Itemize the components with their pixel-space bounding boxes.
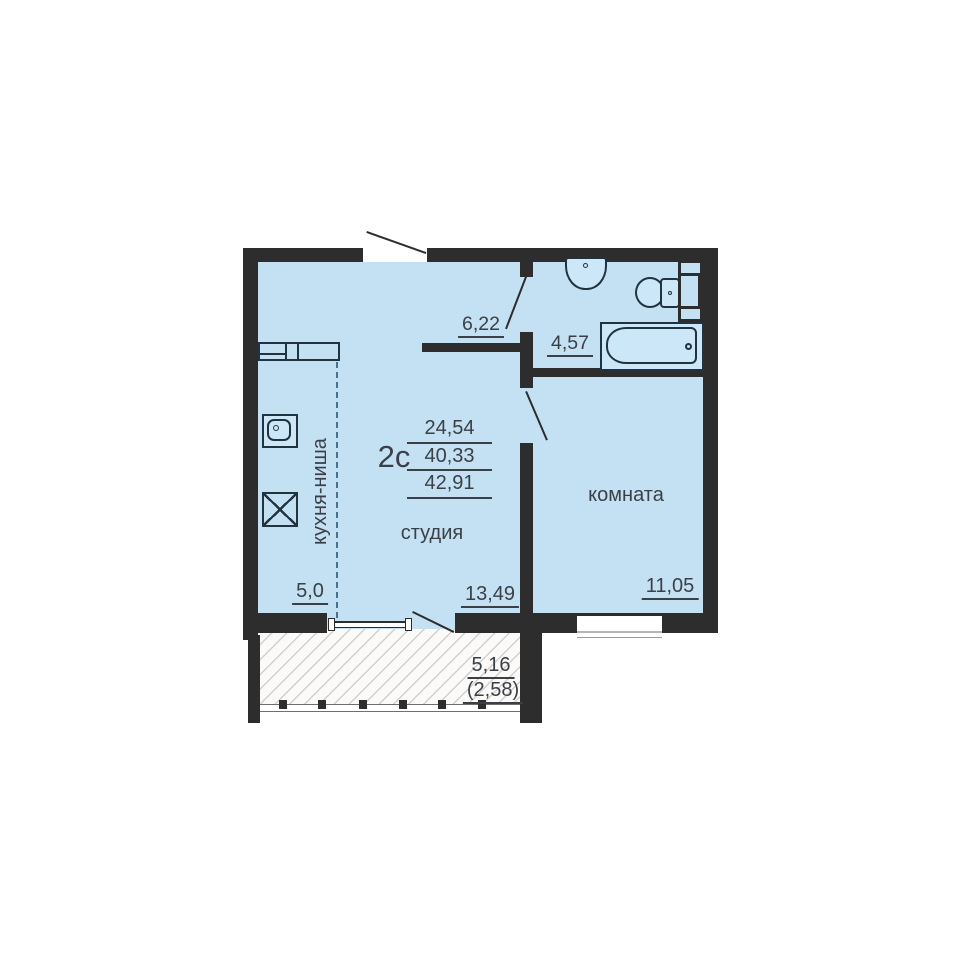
unit-area-total-living: 24,54	[407, 416, 492, 444]
railing-post	[359, 700, 367, 709]
bathroom-area-label: 4,57	[547, 333, 593, 357]
unit-area-table: 24,54 40,33 42,91	[407, 416, 492, 499]
toilet-tank-dot	[668, 291, 672, 295]
railing-post	[318, 700, 326, 709]
vent-shaft-opening	[681, 309, 700, 319]
studio-name-label: студия	[401, 522, 463, 544]
kitchen-counter-icon	[258, 342, 340, 361]
railing-post	[438, 700, 446, 709]
vent-shaft-icon	[678, 260, 703, 322]
railing-post	[399, 700, 407, 709]
washbasin-faucet-dot	[583, 263, 588, 268]
sink-basin	[267, 419, 291, 441]
wall-mid-upper	[520, 332, 533, 388]
kitchen-sink-icon	[262, 414, 298, 448]
counter-divider	[285, 344, 287, 359]
wall-mid-lower	[520, 443, 533, 613]
glazing-cap-right	[405, 618, 412, 631]
room-window	[577, 613, 662, 633]
stove-icon	[262, 492, 298, 527]
vent-shaft-opening	[681, 276, 698, 306]
hallway-area-label: 6,22	[458, 314, 504, 338]
balcony-area-label: 5,16	[468, 654, 515, 679]
wall-balcony-right	[520, 633, 542, 723]
railing-post	[279, 700, 287, 709]
counter-shelf-line	[260, 353, 285, 355]
bathtub-icon	[600, 322, 704, 371]
kitchen-area-label: 5,0	[292, 580, 328, 605]
studio-area-label: 13,49	[461, 583, 519, 608]
wall-bottom-kitchen	[243, 613, 327, 633]
wall-balcony-left	[248, 635, 260, 723]
room-name-label: комната	[588, 484, 664, 506]
bathtub-drain-dot	[685, 343, 692, 350]
wall-bath-door-stub	[520, 262, 533, 277]
wall-bottom-right	[662, 613, 718, 633]
bathtub-inner	[606, 327, 697, 364]
wall-left	[243, 248, 258, 640]
balcony-area-reduced-label: (2,58)	[463, 679, 523, 704]
wall-right	[703, 248, 718, 633]
kitchen-niche-dashed-line	[336, 362, 338, 618]
room-area-label: 11,05	[642, 575, 699, 600]
toilet-tank	[660, 278, 680, 308]
entrance-door-swing	[366, 231, 426, 254]
vent-shaft-opening	[681, 263, 700, 273]
unit-area-with-balcony: 42,91	[407, 471, 492, 499]
wall-hallway	[422, 343, 522, 352]
counter-divider	[297, 344, 299, 359]
glazing-cap-left	[328, 618, 335, 631]
floor-plan: 6,22 4,57 2с 24,54 40,33 42,91 кухня-ниш…	[0, 0, 960, 960]
sink-faucet-dot	[273, 425, 279, 431]
room-window-sill	[577, 637, 662, 638]
unit-type-label: 2с	[378, 440, 411, 474]
wall-bottom-center	[455, 613, 577, 633]
unit-area-total: 40,33	[407, 444, 492, 472]
balcony-glazing	[328, 621, 412, 628]
kitchen-name-label: кухня-ниша	[309, 410, 331, 545]
wall-top-left	[243, 248, 363, 262]
